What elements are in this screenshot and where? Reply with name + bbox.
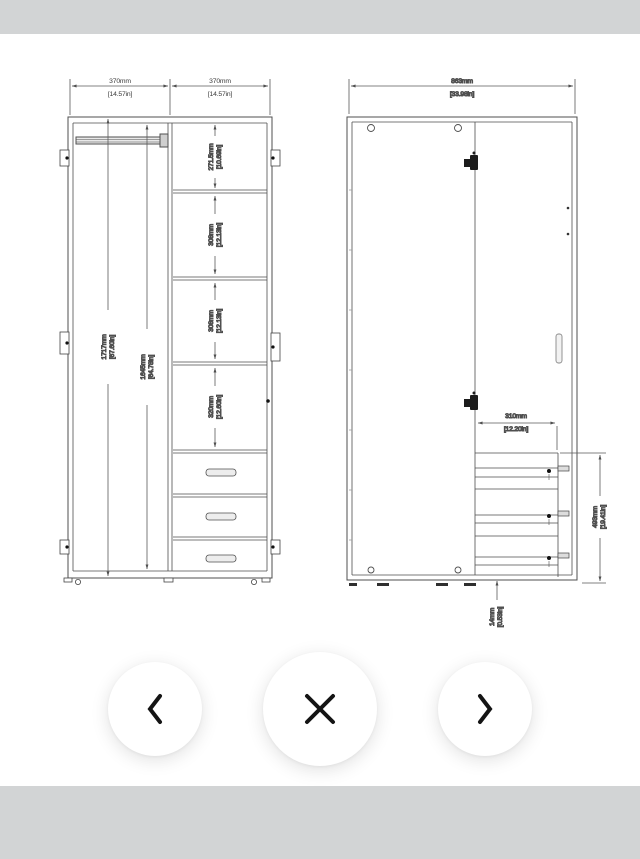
dim-front-width-right-in: [14.57in] [208, 91, 233, 98]
drawer-fronts [173, 469, 267, 562]
front-top-dimensions [70, 79, 270, 115]
shelves [173, 190, 267, 453]
hanging-rod [76, 134, 168, 147]
dim-side-width-in: [33.98in] [450, 91, 475, 98]
letterbox-bottom [0, 786, 640, 859]
chevron-right-icon [475, 692, 495, 726]
front-cabinet-outline [68, 117, 272, 578]
dim-drawer-stack-height-mm: 493mm [592, 506, 599, 528]
drawer-handle [206, 555, 236, 562]
dim-drawer-stack-height [560, 453, 606, 583]
dim-height-interior [137, 125, 155, 569]
dim-base-thickness-mm: 14mm [489, 607, 496, 626]
side-panel-outline [347, 117, 577, 580]
door-handle [556, 334, 562, 363]
drawer-handle [206, 513, 236, 520]
dim-height-total-in: [67.60in] [109, 335, 116, 360]
dim-shelf-3-mm: 308mm [208, 310, 215, 332]
dim-drawer-width-in: [12.20in] [504, 426, 529, 433]
dim-shelf-4-mm: 320mm [208, 396, 215, 418]
side-top-dimension [349, 79, 575, 114]
front-feet [64, 578, 270, 585]
dim-side-width-mm: 863mm [451, 78, 473, 85]
dim-shelf-1-mm: 271.5mm [208, 143, 215, 170]
dim-front-width-right-mm: 370mm [209, 78, 231, 85]
dim-front-width-left-in: [14.57in] [108, 91, 133, 98]
front-view: 370mm [14.57in] 370mm [14.57in] [60, 78, 280, 585]
side-view: 863mm [33.98in] [347, 78, 607, 627]
dim-shelf-3-in: [12.13in] [216, 309, 223, 334]
dim-height-interior-mm: 1645mm [140, 354, 147, 380]
viewer-nav [0, 0, 640, 859]
drawer-box-side [475, 453, 569, 577]
dim-drawer-width-mm: 310mm [505, 413, 527, 420]
image-viewer: 370mm [14.57in] 370mm [14.57in] [0, 0, 640, 859]
close-icon [303, 692, 337, 726]
side-feet [349, 583, 476, 586]
close-button[interactable] [263, 652, 377, 766]
dim-base-thickness-in: [0.53in] [497, 606, 504, 627]
drawer-handle [206, 469, 236, 476]
dim-height-interior-in: [64.78in] [148, 355, 155, 380]
dim-drawer-width [478, 423, 557, 450]
dim-shelf-spacings [204, 125, 222, 447]
dim-drawer-stack-height-in: [19.41in] [600, 505, 607, 530]
cam-screw-holes [368, 125, 570, 574]
dim-height-total-mm: 1717mm [101, 334, 108, 360]
dim-front-width-left-mm: 370mm [109, 78, 131, 85]
chevron-left-icon [145, 692, 165, 726]
side-hinges [464, 152, 478, 411]
letterbox-top [0, 0, 640, 34]
next-button[interactable] [438, 662, 532, 756]
door-hinges [60, 150, 280, 554]
dim-shelf-2-in: [12.13in] [216, 223, 223, 248]
dim-shelf-2-mm: 308mm [208, 224, 215, 246]
dim-shelf-4-in: [12.60in] [216, 395, 223, 420]
dim-height-total [97, 119, 116, 576]
prev-button[interactable] [108, 662, 202, 756]
dim-shelf-1-in: [10.69in] [216, 145, 223, 170]
